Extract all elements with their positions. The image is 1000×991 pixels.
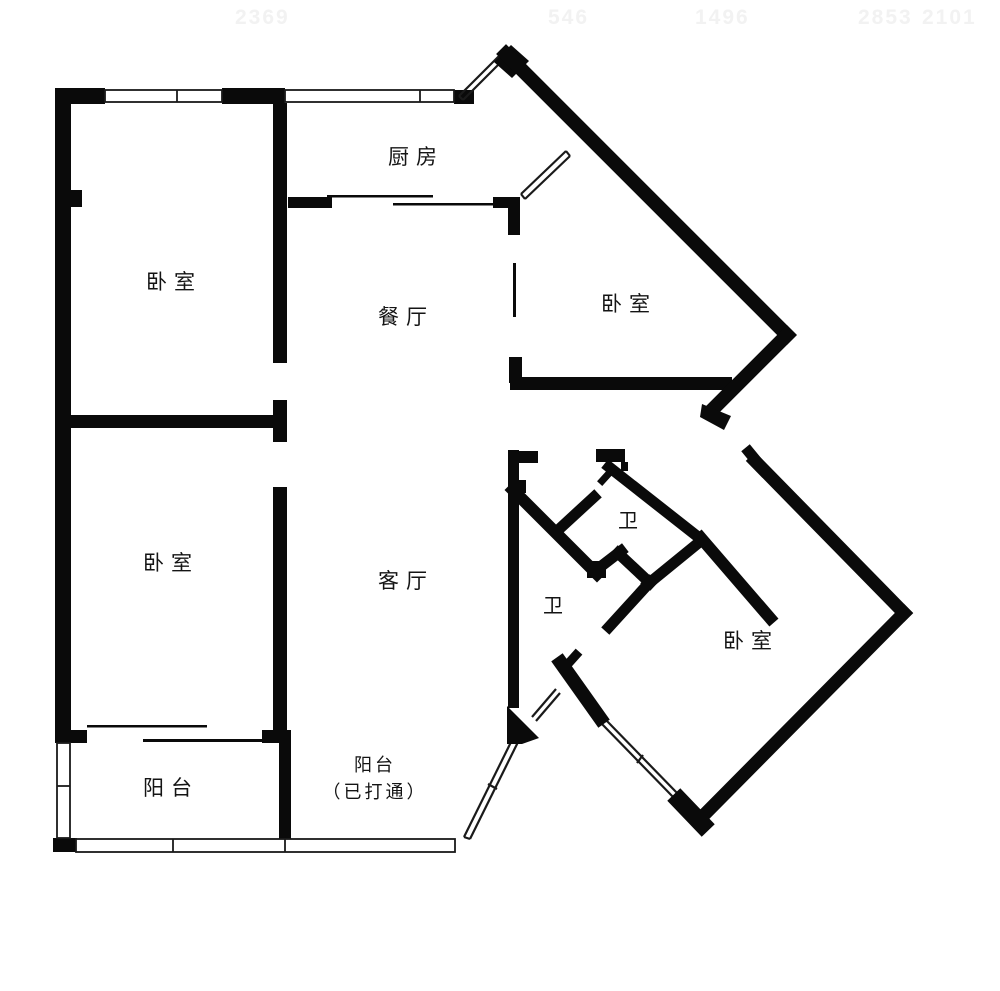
room-label-bedroom-top-right: 卧室	[601, 288, 657, 318]
room-label-kitchen: 厨房	[388, 141, 444, 171]
room-label-bedroom-mid-left: 卧室	[143, 547, 199, 577]
interior-walls	[71, 103, 732, 742]
floor-plan-canvas: 2369 546 1496 2853 2101	[0, 0, 1000, 991]
room-label-balcony-left: 阳台	[143, 772, 199, 802]
outer-walls	[53, 88, 474, 852]
room-label-bedroom-top-left: 卧室	[146, 266, 202, 296]
room-label-bath-upper: 卫	[618, 505, 640, 534]
room-label-bath-lower: 卫	[543, 590, 565, 619]
diagonal-windows	[459, 54, 679, 839]
room-label-bedroom-right: 卧室	[723, 625, 779, 655]
room-label-balcony-center-line2: （已打通）	[323, 779, 428, 805]
room-label-dining: 餐厅	[378, 301, 434, 331]
room-label-living: 客厅	[378, 565, 434, 595]
room-label-balcony-center-line1: 阳台	[354, 752, 396, 778]
floor-plan-drawing	[0, 0, 1000, 991]
